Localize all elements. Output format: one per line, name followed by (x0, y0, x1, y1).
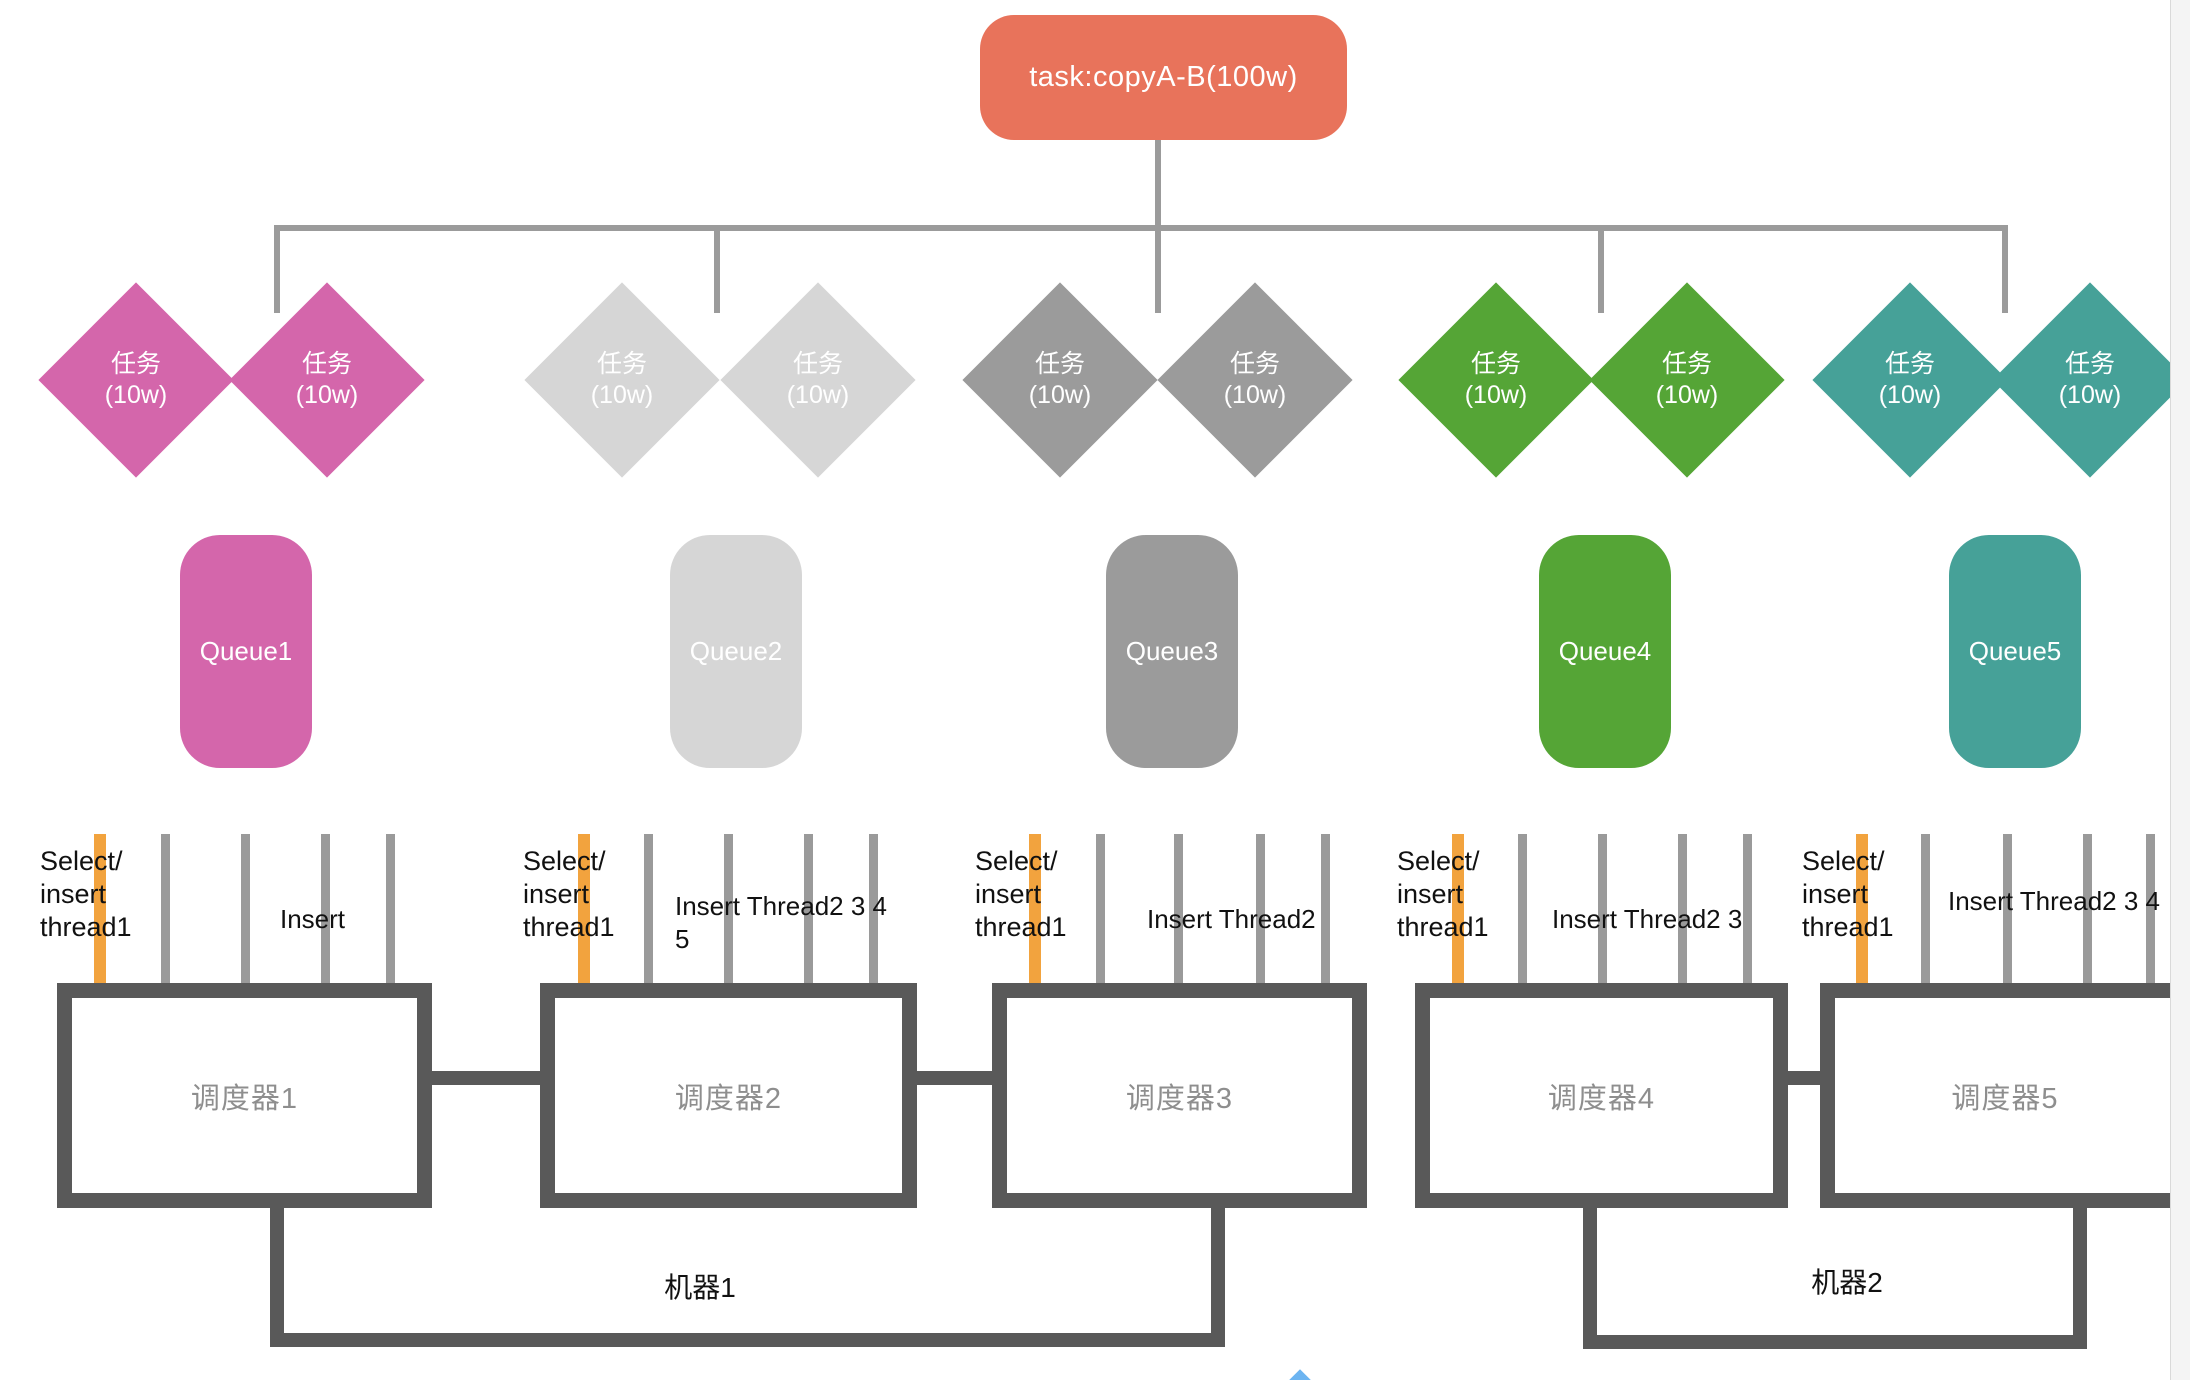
diamond-label: 任务 (1885, 349, 1935, 380)
insert-thread-line (241, 834, 250, 983)
machine-label: 机器2 (1767, 1261, 1927, 1301)
queue-node: Queue1 (180, 535, 312, 768)
tree-drop-line (1598, 225, 1604, 313)
tree-drop-line (2002, 225, 2008, 313)
scheduler-connector (917, 1071, 992, 1085)
insert-thread-label: Insert Thread2 3 4 (1948, 885, 2160, 918)
diamond-sublabel: (10w) (1465, 380, 1528, 411)
insert-thread-line (386, 834, 395, 983)
scheduler-box: 调度器5 (1820, 983, 2190, 1208)
task-diamond: 任务(10w) (962, 282, 1157, 477)
diamond-sublabel: (10w) (1224, 380, 1287, 411)
scheduler-box: 调度器3 (992, 983, 1367, 1208)
task-diamond: 任务(10w) (720, 282, 915, 477)
diamond-sublabel: (10w) (105, 380, 168, 411)
task-diamond: 任务(10w) (524, 282, 719, 477)
blue-diamond (1222, 1369, 1378, 1380)
machine-bracket-bottom (1583, 1335, 2087, 1349)
diamond-sublabel: (10w) (1656, 380, 1719, 411)
right-edge-strip (2170, 0, 2190, 1380)
diamond-label: 任务 (1662, 349, 1712, 380)
diamond-label: 任务 (793, 349, 843, 380)
queue-node: Queue3 (1106, 535, 1238, 768)
select-insert-thread-label: Select/insertthread1 (975, 845, 1165, 944)
diamond-sublabel: (10w) (1879, 380, 1942, 411)
insert-thread-line (1743, 834, 1752, 983)
diamond-label: 任务 (111, 349, 161, 380)
task-diamond: 任务(10w) (1398, 282, 1593, 477)
diagram-canvas: task:copyA-B(100w) 任务(10w) 任务(10w) 任务(10… (0, 0, 2190, 1380)
insert-thread-label: Insert (280, 903, 345, 936)
machine-bracket-right (2073, 1208, 2087, 1349)
task-diamond: 任务(10w) (1812, 282, 2007, 477)
machine-bracket-left (1583, 1208, 1597, 1349)
machine-label: 机器1 (620, 1266, 780, 1306)
diamond-label: 任务 (1035, 349, 1085, 380)
diamond-label: 任务 (597, 349, 647, 380)
diamond-sublabel: (10w) (1029, 380, 1092, 411)
tree-drop-line (274, 225, 280, 313)
diamond-label: 任务 (1230, 349, 1280, 380)
diamond-sublabel: (10w) (2059, 380, 2122, 411)
insert-thread-line (1321, 834, 1330, 983)
task-diamond: 任务(10w) (38, 282, 233, 477)
diamond-label: 任务 (302, 349, 352, 380)
scheduler-connector (432, 1071, 540, 1085)
queue-node: Queue2 (670, 535, 802, 768)
insert-thread-label: Insert Thread2 3 (1552, 903, 1742, 936)
task-diamond: 任务(10w) (1157, 282, 1352, 477)
task-diamond: 任务(10w) (1992, 282, 2187, 477)
tree-connector-horizontal (274, 225, 2008, 231)
scheduler-connector (1788, 1071, 1820, 1085)
queue-node: Queue4 (1539, 535, 1671, 768)
machine-bracket-right (1211, 1208, 1225, 1347)
insert-thread-label: Insert Thread2 (1147, 903, 1316, 936)
machine-bracket-left (270, 1208, 284, 1347)
diamond-label: 任务 (1471, 349, 1521, 380)
diamond-sublabel: (10w) (296, 380, 359, 411)
diamond-sublabel: (10w) (787, 380, 850, 411)
task-diamond: 任务(10w) (1589, 282, 1784, 477)
insert-thread-label: Insert Thread2 3 45 (675, 890, 887, 956)
task-diamond: 任务(10w) (229, 282, 424, 477)
tree-drop-line (714, 225, 720, 313)
scheduler-box: 调度器4 (1415, 983, 1788, 1208)
machine-bracket-bottom (270, 1333, 1225, 1347)
diamond-sublabel: (10w) (591, 380, 654, 411)
queue-node: Queue5 (1949, 535, 2081, 768)
diamond-label: 任务 (2065, 349, 2115, 380)
task-node: task:copyA-B(100w) (980, 15, 1347, 140)
scheduler-box: 调度器1 (57, 983, 432, 1208)
scheduler-box: 调度器2 (540, 983, 917, 1208)
select-insert-thread-label: Select/insertthread1 (40, 845, 230, 944)
